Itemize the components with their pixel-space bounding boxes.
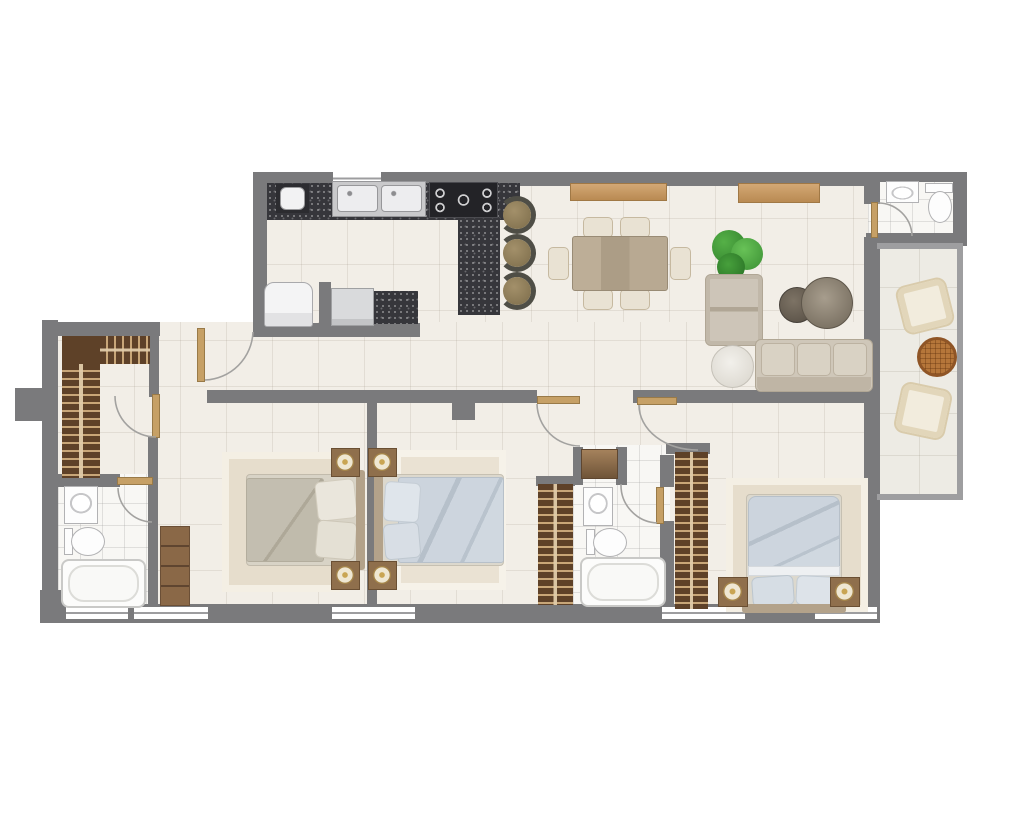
bedroom3-lamp-right xyxy=(835,582,854,601)
bedroom2-headboard xyxy=(374,470,383,570)
wall-balcony-bottom xyxy=(877,494,963,500)
sideboard-shelf-2 xyxy=(738,183,820,203)
wall-entry-top xyxy=(58,322,160,336)
dining-table xyxy=(572,236,668,291)
sofa-cushion-2 xyxy=(797,343,831,376)
powder-toilet-bowl xyxy=(928,191,952,223)
wall-entry-bedroom1-upper xyxy=(149,322,159,397)
door-leaf-bedroom1 xyxy=(152,394,160,438)
bedroom3-duvet xyxy=(748,496,840,574)
bedroom1-duvet xyxy=(246,478,324,562)
wall-right-upper xyxy=(864,180,880,204)
wall-balcony-top xyxy=(877,243,963,249)
bar-stool-seat-2 xyxy=(503,239,531,267)
wall-powder-right xyxy=(953,172,967,238)
wall-outer-left xyxy=(42,320,58,617)
sofa-back xyxy=(757,377,871,391)
bedroom1-pillow-1 xyxy=(314,478,358,522)
sofa-cushion-1 xyxy=(761,343,795,376)
sofa-cushion-3 xyxy=(833,343,867,376)
bathroom1-toilet-bowl xyxy=(71,527,105,556)
wall-entry-bedroom1-lower xyxy=(148,437,158,606)
kitchen-sink-basin-left xyxy=(337,185,378,212)
wardrobe-bedroom2 xyxy=(538,484,573,605)
wardrobe-bedroom3 xyxy=(675,452,708,609)
dining-chair-top-2 xyxy=(620,217,650,238)
balcony-lounge-chair-2 xyxy=(892,380,954,442)
window-bathroom1 xyxy=(66,607,128,619)
kitchen-sink-basin-right xyxy=(381,185,422,212)
wall-bathroom2-right-upper xyxy=(660,455,674,487)
window-bedroom1-right xyxy=(332,607,415,619)
kitchen-counter-bottom xyxy=(374,291,418,324)
dining-chair-right xyxy=(670,247,691,280)
bar-stool-seat-3 xyxy=(503,277,531,305)
bedroom3-pillow-1 xyxy=(751,575,795,608)
kitchen-fridge xyxy=(264,282,313,327)
door-leaf-bathroom2 xyxy=(656,487,664,524)
dining-chair-bottom-2 xyxy=(620,289,650,310)
side-table-marble xyxy=(711,345,754,388)
bedroom1-headboard xyxy=(356,470,365,570)
bedroom2-pillow-2 xyxy=(382,521,421,560)
powder-sink xyxy=(886,181,919,203)
wall-stub-bedroom2 xyxy=(452,390,475,420)
dining-chair-left xyxy=(548,247,569,280)
bedroom2-lamp-top xyxy=(373,453,391,471)
dining-chair-top-1 xyxy=(583,217,613,238)
bedroom1-lamp-top xyxy=(336,453,354,471)
kitchen-prep-sink-basin xyxy=(280,187,305,210)
dining-chair-bottom-1 xyxy=(583,289,613,310)
bathroom1-sink xyxy=(64,486,98,524)
closet-top-rail xyxy=(100,336,150,364)
door-leaf-bedroom2 xyxy=(537,396,580,404)
window-bedroom1-left xyxy=(134,607,208,619)
bathroom2-toilet-bowl xyxy=(593,528,627,557)
coffee-table-large xyxy=(801,277,853,329)
wall-outer-bump xyxy=(15,388,44,421)
wall-kitchen-stub xyxy=(319,282,331,328)
bar-stool-seat-1 xyxy=(503,201,531,229)
kitchen-dishwasher xyxy=(331,288,374,326)
door-leaf-powder-room xyxy=(871,202,878,238)
bedroom1-lamp-bottom xyxy=(336,566,354,584)
bathroom2-tub-inner xyxy=(587,563,659,601)
door-leaf-entry xyxy=(197,328,205,382)
wall-balcony-right xyxy=(957,243,963,500)
door-leaf-bedroom3 xyxy=(637,397,677,405)
bathroom1-tub-inner xyxy=(68,565,139,602)
balcony-round-table xyxy=(917,337,957,377)
kitchen-counter-side xyxy=(458,218,500,315)
closet-side-rail xyxy=(62,364,100,478)
shower-niche xyxy=(581,449,618,479)
bathroom2-sink xyxy=(583,487,613,526)
living-armchair xyxy=(705,274,763,346)
bedroom2-pillow-1 xyxy=(383,481,422,523)
bedroom1-pillow-2 xyxy=(314,519,357,560)
floorplan-stage xyxy=(0,0,1024,813)
sideboard-shelf-1 xyxy=(570,183,667,201)
door-leaf-bathroom1 xyxy=(117,477,153,485)
bedroom3-sheet-fold xyxy=(748,566,840,576)
bedroom2-lamp-bottom xyxy=(373,566,391,584)
kitchen-stove xyxy=(429,182,498,218)
bedroom3-lamp-left xyxy=(723,582,742,601)
closet-corner-unit xyxy=(62,336,100,364)
bedroom1-dresser xyxy=(160,526,190,606)
